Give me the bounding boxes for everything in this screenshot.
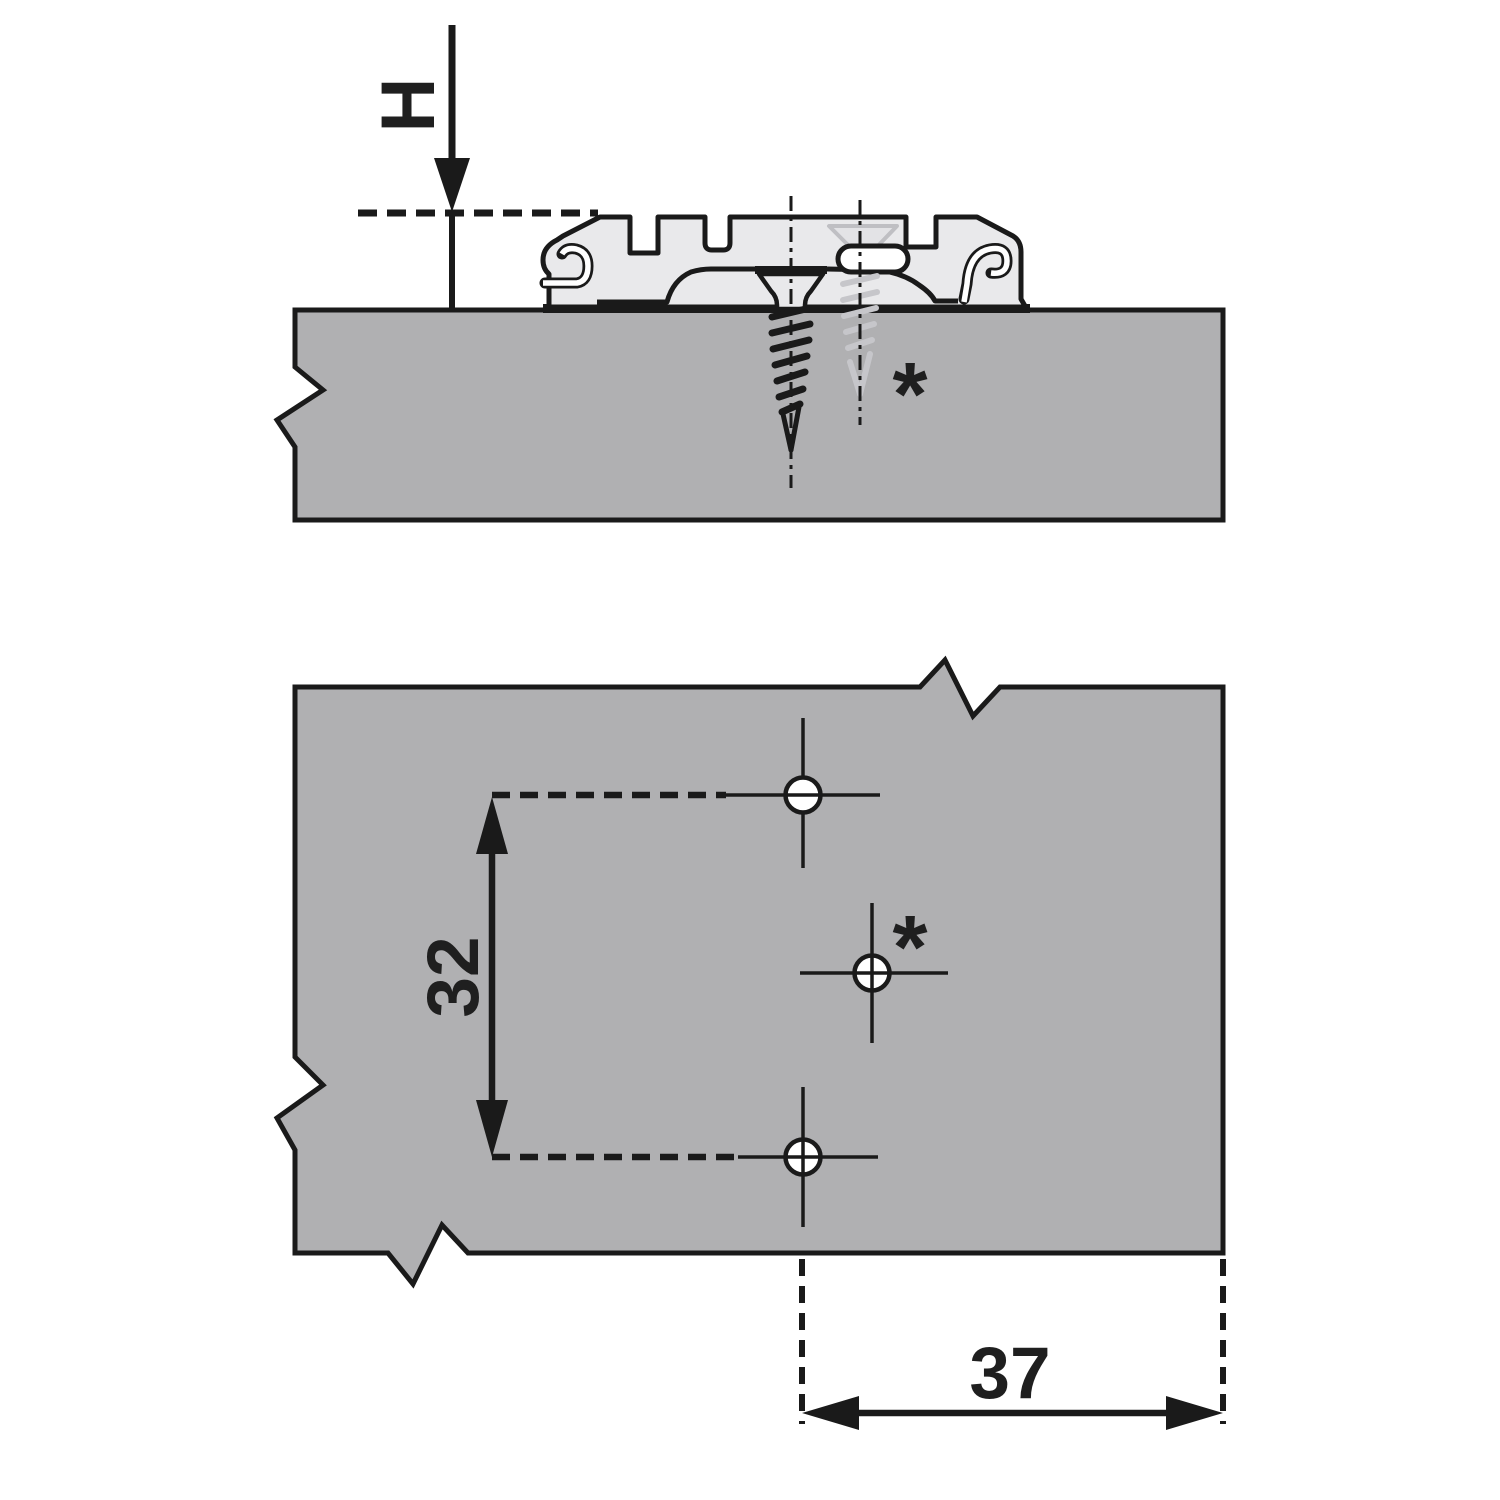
height-dimension-label: H [366, 78, 451, 133]
wood-panel-side [277, 310, 1223, 520]
technical-drawing-canvas: H * * [0, 0, 1500, 1500]
drawing-svg: H * * [0, 0, 1500, 1500]
adjustment-slot [838, 246, 908, 272]
plan-view: * 32 37 [277, 660, 1223, 1430]
edge-distance-dimension: 37 [802, 1259, 1223, 1430]
height-arrowhead [434, 158, 470, 212]
plan-asterisk-annotation: * [892, 898, 927, 998]
edge-distance-label: 37 [969, 1333, 1050, 1414]
side-view: H * [277, 25, 1223, 520]
side-asterisk-annotation: * [892, 345, 927, 445]
row-spacing-label: 32 [413, 936, 494, 1017]
